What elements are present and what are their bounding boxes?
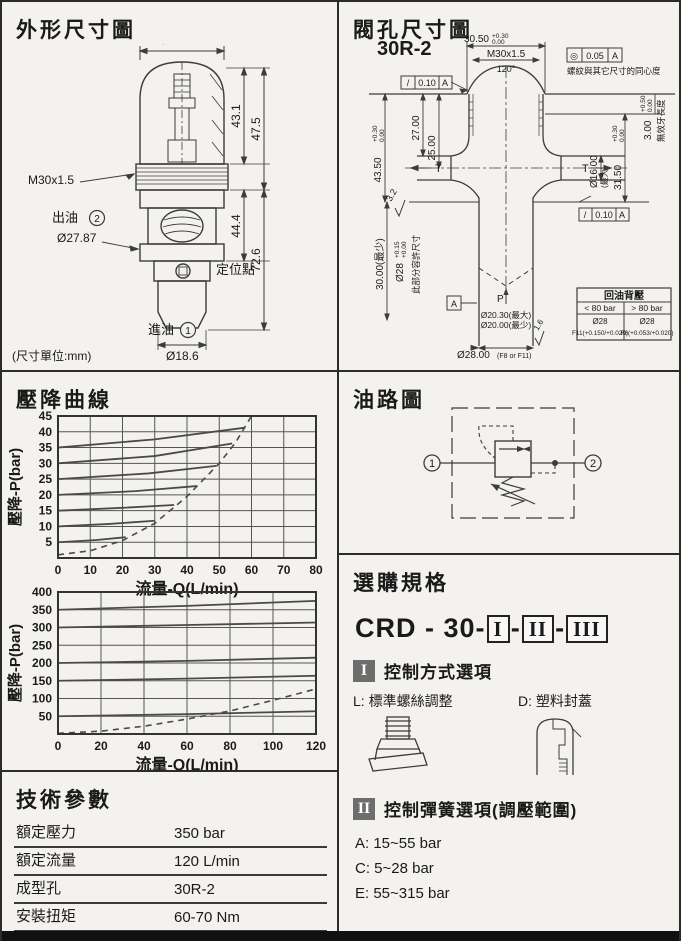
series-setting-30-bar [58,443,232,463]
spring-option-c: C: 5~28 bar [355,856,681,881]
y-tick-label: 25 [39,472,53,486]
dim-2700: 27.00 [411,115,422,140]
series-setting-35-bar [58,428,245,448]
spring-option-e: E: 55~315 bar [355,881,681,906]
spring-option-a: A: 15~55 bar [355,831,681,856]
dim-2000: Ø20.00(最少) [481,320,532,330]
page-footer-bar [2,931,681,941]
dim-3050: 30.50 [464,34,489,45]
model-code-dash1: - [511,613,521,644]
dim-3000: 30.00(最少) [374,238,386,290]
port-number-badges: 2 1 [90,211,196,338]
x-tick-label: 20 [116,563,130,577]
x-tick-label: 60 [245,563,259,577]
svg-text:1.6: 1.6 [532,317,546,332]
section1-numeral: I [353,660,375,682]
bp-title: 回油背壓 [604,289,644,302]
dim-d2787: Ø27.87 [57,231,97,245]
x-tick-label: 50 [213,563,227,577]
bp-gt-fit: F8(+0.053/+0.020) [621,330,674,337]
spec-label: 成型孔 [16,877,61,898]
dim-4350-tp: +0.30 [372,125,379,142]
dim-3150: 31.50 [613,165,624,190]
x-tick-label: 0 [55,739,62,753]
concentricity-note: 螺紋與其它尺寸的同心度 [567,66,661,76]
circuit-port2-number: 2 [590,458,596,470]
pressure-drop-chart-low: 0102030405060708051015202530354045流量-Q(L… [6,408,336,598]
section1-header: I 控制方式選項 [353,658,681,683]
spec-row-flow: 額定流量 120 L/min [14,848,327,876]
dim-3150-tb: 0.00 [619,129,626,142]
x-tick-label: 10 [84,563,98,577]
dim-444: 44.4 [229,214,243,238]
screw-adjust-icon [363,715,523,782]
option-D: D: 塑料封蓋 [518,691,681,711]
d28-note: 此部分容許尺寸 [411,234,421,294]
circuit-port1-number: 1 [429,458,435,470]
p-port-label: P [497,294,504,305]
y-tick-label: 100 [32,692,52,706]
spec-value: 350 bar [174,825,225,842]
dim-angle: 120° [497,64,516,74]
valve-outline-drawing: Ø31.00 43.1 47.5 44.4 72.6 M30x1.5 出油 Ø2… [2,44,339,372]
svg-text:◎: ◎ [570,51,578,61]
x-tick-label: 80 [223,739,237,753]
dim-d16: Ø16.00 [589,155,600,188]
y-tick-label: 150 [32,674,52,688]
y-axis-label: 壓降-P(bar) [6,448,24,526]
dim-4350: 43.50 [373,157,384,182]
dim-d28: Ø28 [395,263,406,282]
spec-value: 30R-2 [174,881,215,898]
svg-text:/: / [584,210,587,220]
svg-text:/: / [407,78,410,88]
y-tick-label: 10 [39,519,53,533]
series-setting-20-bar [58,486,197,495]
out-port-number: 2 [94,214,100,225]
datasheet-page: 外形尺寸圖 [0,0,681,941]
dim-2030: Ø20.30(最大) [481,310,532,320]
section2-numeral: II [353,798,375,820]
dim-3050-tb: 0.00 [492,39,505,46]
panel-pressure-curves: 壓降曲線 0102030405060708051015202530354045流… [2,372,339,772]
svg-text:0.10: 0.10 [418,78,436,88]
outline-title: 外形尺寸圖 [16,14,337,44]
out-port-label: 出油 [52,210,78,225]
dim-d186: Ø18.6 [166,349,199,363]
model-code-prefix: CRD - 30- [355,613,486,644]
spec-row-torque: 安裝扭矩 60-70 Nm [14,904,327,931]
dim-thread: M30x1.5 [28,173,74,187]
back-pressure-table: 回油背壓 < 80 bar > 80 bar Ø28 F11(+0.150/+0… [572,288,673,340]
dim-2800-fit: (F8 or F11) [497,353,532,360]
dim-d31: Ø31.00 [162,44,202,47]
series-setting-5-bar [58,537,126,542]
dim-300-tb: 0.00 [647,99,654,112]
series-setting-25-bar [58,466,216,479]
x-tick-label: 0 [55,563,62,577]
section1-title: 控制方式選項 [384,658,492,683]
bp-gt-d: Ø28 [639,317,655,326]
y-tick-label: 30 [39,456,53,470]
dim-d28-tp: +0.15 [394,241,401,258]
dim-3150-tp: +0.30 [612,125,619,142]
panel-outline-drawing: 外形尺寸圖 [2,2,339,372]
dim-431: 43.1 [229,104,243,128]
spring-options: A: 15~55 bar C: 5~28 bar E: 55~315 bar [355,831,681,906]
y-tick-label: 50 [39,709,53,723]
y-tick-label: 5 [45,535,52,549]
spec-row-cavity: 成型孔 30R-2 [14,876,327,904]
spec-row-pressure: 額定壓力 350 bar [14,820,327,848]
cavity-drawing: / 0.10 A ◎ 0.05 A 螺紋與其它尺寸的同心度 [339,30,681,370]
section2-header: II 控制彈簧選項(調壓範圍) [353,796,681,821]
flatness-flag-right: / 0.10 A [579,208,629,221]
panel-cavity-drawing: 閥孔尺寸圖 30R-2 [339,2,681,372]
y-tick-label: 350 [32,603,52,617]
spec-label: 額定流量 [16,849,76,870]
datum-a-flag: A [447,296,477,310]
x-tick-label: 30 [148,563,162,577]
y-tick-label: 200 [32,656,52,670]
svg-text:0.10: 0.10 [595,210,613,220]
dimension-labels: Ø31.00 43.1 47.5 44.4 72.6 M30x1.5 出油 Ø2… [28,44,263,363]
dim-300-tp: +0.50 [640,95,647,112]
unit-note: (尺寸單位:mm) [12,347,91,364]
pressure-drop-chart-high: 02040608010012050100150200250300350400流量… [6,584,336,772]
spec-label: 安裝扭矩 [16,905,76,926]
bp-lt-d: Ø28 [592,317,608,326]
y-tick-label: 15 [39,504,53,518]
y-tick-label: 45 [39,409,53,423]
section2-title: 控制彈簧選項(調壓範圍) [384,796,577,821]
model-code-dash2: - [555,613,565,644]
ineffective-thread-note: 無效牙長度 [656,99,666,142]
model-code-seg3: III [566,615,608,643]
flatness-flag-top: / 0.10 A [401,76,452,89]
model-code: CRD - 30- I - II - III [355,613,681,644]
y-tick-label: 400 [32,585,52,599]
y-tick-label: 300 [32,621,52,635]
x-tick-label: 80 [309,563,323,577]
spec-value: 120 L/min [174,853,240,870]
control-option-icons [363,715,681,782]
valve-body [136,62,228,328]
panel-ordering: 選購規格 CRD - 30- I - II - III I 控制方式選項 L: … [339,555,681,931]
svg-text:A: A [442,78,448,88]
model-code-seg1: I [487,615,510,643]
in-port-number: 1 [185,326,191,337]
panel-circuit-diagram: 油路圖 [339,372,681,555]
dim-2500: 25.00 [427,135,438,160]
model-code-seg2: II [522,615,554,643]
specs-title: 技術參數 [16,784,337,814]
concentricity-callout: ◎ 0.05 A 螺紋與其它尺寸的同心度 [567,48,661,76]
dim-thread: M30x1.5 [487,49,526,60]
x-tick-label: 100 [263,739,283,753]
dim-4350-tb: 0.00 [379,129,386,142]
svg-text:A: A [451,299,457,309]
y-tick-label: 250 [32,638,52,652]
x-tick-label: 40 [137,739,151,753]
circuit-symbol [424,408,601,518]
x-tick-label: 120 [306,739,326,753]
dim-475: 47.5 [249,117,263,141]
locating-point-label: 定位點 [216,262,255,277]
y-tick-label: 20 [39,488,53,502]
svg-text:3.2: 3.2 [384,187,399,203]
specs-table: 額定壓力 350 bar 額定流量 120 L/min 成型孔 30R-2 安裝… [14,820,327,931]
spec-label: 額定壓力 [16,821,76,842]
roughness-16: 1.6 [532,317,546,345]
x-axis-label: 流量-Q(L/min) [135,755,238,772]
y-tick-label: 40 [39,425,53,439]
y-axis-label: 壓降-P(bar) [6,624,24,702]
ordering-title: 選購規格 [353,567,681,597]
series-setting-15-bar [58,505,174,511]
series-setting-10-bar [58,521,155,527]
bp-col-gt: > 80 bar [631,303,663,313]
in-port-label: 進油 [148,322,174,337]
panel-specs: 技術參數 額定壓力 350 bar 額定流量 120 L/min 成型孔 30R… [2,772,339,931]
dim-300: 3.00 [643,120,654,140]
plastic-cap-icon [523,715,681,782]
y-tick-label: 35 [39,441,53,455]
dim-2800: Ø28.00 [457,350,490,361]
x-tick-label: 70 [277,563,291,577]
spec-value: 60-70 Nm [174,909,240,926]
svg-text:A: A [612,51,618,61]
t-label-left: T [435,163,442,175]
svg-text:0.05: 0.05 [586,51,604,61]
x-tick-label: 40 [180,563,194,577]
svg-text:A: A [619,210,625,220]
dim-d28-tb: +0.00 [401,241,408,258]
x-tick-label: 20 [94,739,108,753]
bp-col-lt: < 80 bar [584,303,616,313]
circuit-diagram: 1 2 [339,400,681,550]
control-options: L: 標準螺絲調整 D: 塑料封蓋 [353,691,681,711]
option-L: L: 標準螺絲調整 [353,691,518,711]
x-tick-label: 60 [180,739,194,753]
t-label-right: T [582,163,589,175]
